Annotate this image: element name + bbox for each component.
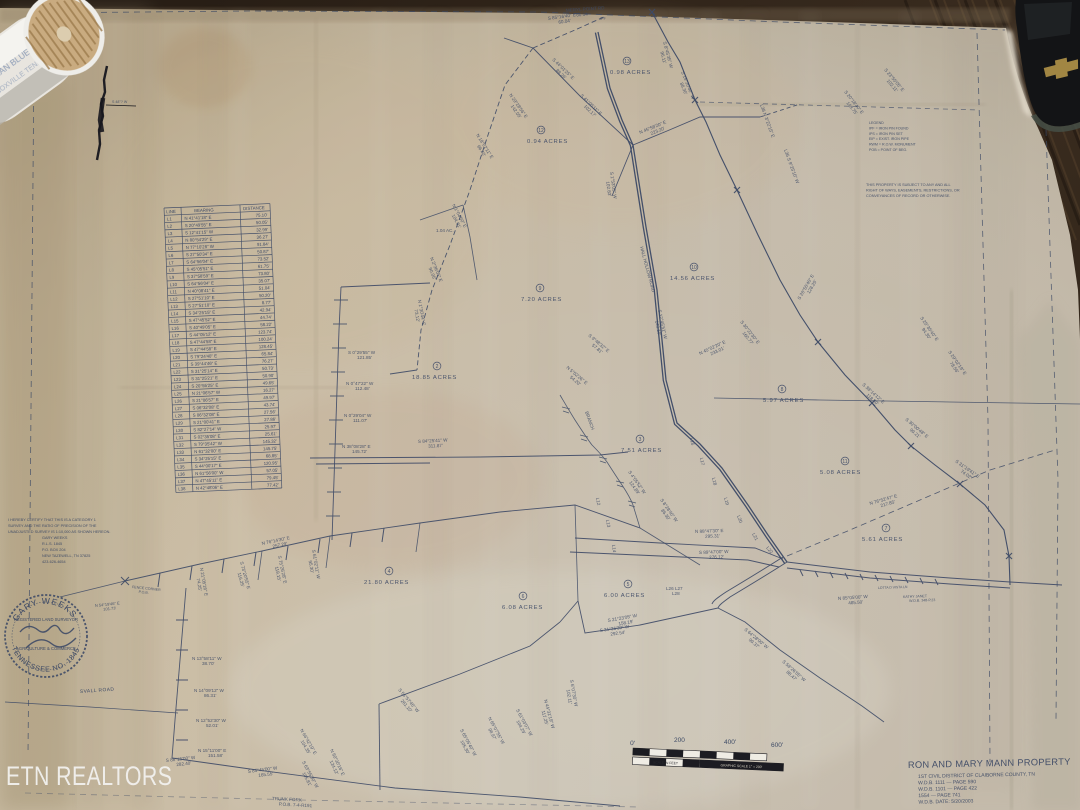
svg-text:LEGEND: LEGEND: [869, 121, 884, 125]
svg-text:L34: L34: [177, 457, 185, 462]
svg-text:16.27': 16.27': [263, 387, 275, 392]
svg-text:L16: L16: [171, 326, 179, 331]
svg-text:49.97': 49.97': [263, 395, 275, 400]
svg-text:123.74': 123.74': [258, 329, 272, 335]
svg-text:L13: L13: [171, 304, 179, 309]
svg-text:60.04~: 60.04~: [576, 11, 591, 17]
svg-text:311.87': 311.87': [428, 443, 443, 449]
svg-text:L15: L15: [171, 318, 179, 323]
svg-text:128.45': 128.45': [259, 344, 273, 350]
svg-text:L24: L24: [174, 384, 182, 389]
svg-text:43.74': 43.74': [264, 402, 276, 407]
svg-text:38.70': 38.70': [202, 661, 214, 666]
svg-text:49.65': 49.65': [263, 380, 275, 385]
svg-text:UNADJUSTED SURVEY IS 1:10,000: UNADJUSTED SURVEY IS 1:10,000 AS SHOWN H…: [8, 530, 110, 534]
svg-text:21.80 ACRES: 21.80 ACRES: [364, 580, 409, 586]
svg-text:52.01': 52.01': [206, 723, 218, 728]
svg-text:L22: L22: [173, 369, 181, 374]
svg-text:NEW TAZEWELL, TN 37825: NEW TAZEWELL, TN 37825: [42, 554, 90, 558]
svg-text:400': 400': [724, 739, 736, 746]
svg-text:L6: L6: [168, 253, 174, 258]
svg-text:IPS = IRON PIN SET: IPS = IRON PIN SET: [869, 132, 904, 136]
svg-text:L10: L10: [170, 282, 178, 287]
svg-text:120.95': 120.95': [264, 460, 278, 466]
svg-text:75.10': 75.10': [256, 212, 268, 217]
svg-text:ETN REALTORS: ETN REALTORS: [6, 762, 172, 792]
svg-text:L28: L28: [175, 413, 183, 418]
svg-text:R.L.S. 1845: R.L.S. 1845: [42, 542, 62, 546]
svg-text:276.12': 276.12': [709, 554, 724, 560]
svg-text:L27: L27: [175, 406, 183, 411]
svg-text:58.22': 58.22': [260, 322, 272, 327]
svg-text:57.05': 57.05': [266, 468, 278, 473]
svg-text:27.86': 27.86': [264, 417, 276, 422]
svg-text:50.87': 50.87': [257, 249, 269, 254]
svg-text:73.52': 73.52': [257, 256, 269, 261]
svg-text:10: 10: [691, 265, 697, 271]
svg-text:L38: L38: [178, 486, 186, 491]
svg-text:145.75': 145.75': [263, 446, 277, 452]
svg-text:L28: L28: [672, 591, 680, 596]
svg-text:AGRICULTURE & COMMERCE: AGRICULTURE & COMMERCE: [16, 646, 76, 651]
svg-text:W.D.B. DATE: 5/20/2003: W.D.B. DATE: 5/20/2003: [918, 798, 973, 805]
svg-text:9: 9: [539, 286, 542, 292]
svg-text:7: 7: [885, 526, 888, 532]
svg-text:76.27': 76.27': [262, 358, 274, 363]
svg-text:L23: L23: [174, 377, 182, 382]
svg-text:EIP = EXIST. IRON PIPE: EIP = EXIST. IRON PIPE: [869, 137, 910, 141]
svg-text:111.07': 111.07': [353, 418, 367, 423]
svg-text:I HEREBY CERTIFY THAT THIS IS: I HEREBY CERTIFY THAT THIS IS A CATEGORY…: [8, 518, 96, 522]
svg-text:L36: L36: [178, 472, 186, 477]
svg-text:5.61 ACRES: 5.61 ACRES: [862, 537, 903, 543]
svg-text:L12: L12: [170, 296, 178, 301]
svg-text:485.50': 485.50': [848, 599, 863, 605]
svg-text:POB = POINT OF BEG.: POB = POINT OF BEG.: [869, 148, 907, 152]
svg-text:50.73': 50.73': [262, 366, 274, 371]
svg-text:L7: L7: [169, 260, 175, 265]
svg-text:LINE: LINE: [166, 209, 176, 214]
svg-text:1.04 AC.: 1.04 AC.: [436, 228, 454, 233]
svg-text:0.98 ACRES: 0.98 ACRES: [610, 70, 651, 76]
svg-text:145.32': 145.32': [263, 438, 277, 444]
svg-text:L2: L2: [167, 224, 173, 229]
svg-text:SURVEY AND THE RATIO OF PRECIS: SURVEY AND THE RATIO OF PRECISION OF THE: [8, 524, 97, 528]
svg-text:L8: L8: [169, 267, 175, 272]
svg-text:GARY WEEKS: GARY WEEKS: [42, 536, 68, 540]
svg-text:S 48°? W: S 48°? W: [112, 100, 128, 104]
svg-text:32.99': 32.99': [256, 227, 268, 232]
svg-text:5.97 ACRES: 5.97 ACRES: [763, 398, 804, 404]
svg-text:L25: L25: [174, 391, 182, 396]
svg-text:RWM = R.O.W. MONUMENT: RWM = R.O.W. MONUMENT: [869, 143, 917, 147]
svg-text:0': 0': [630, 740, 635, 747]
svg-text:5: 5: [627, 582, 630, 588]
svg-text:8.77': 8.77': [262, 300, 272, 305]
svg-text:L4: L4: [168, 238, 174, 243]
svg-text:79.45': 79.45': [267, 475, 279, 480]
svg-text:L11: L11: [170, 289, 178, 294]
svg-text:50.90': 50.90': [262, 373, 274, 378]
svg-text:REGISTERED LAND SURVEYOR: REGISTERED LAND SURVEYOR: [14, 617, 78, 622]
svg-text:L33: L33: [177, 450, 185, 455]
svg-text:BEARING: BEARING: [194, 207, 214, 213]
svg-text:14.56 ACRES: 14.56 ACRES: [670, 276, 715, 282]
svg-text:44.74': 44.74': [260, 314, 272, 319]
svg-text:600': 600': [771, 742, 783, 749]
svg-text:50.05': 50.05': [256, 220, 268, 225]
svg-text:25.97': 25.97': [264, 424, 276, 429]
svg-text:P.O. BOX 204: P.O. BOX 204: [42, 548, 66, 552]
svg-text:L30: L30: [176, 428, 184, 433]
svg-text:7.51 ACRES: 7.51 ACRES: [621, 448, 662, 454]
svg-text:145.72': 145.72': [352, 449, 367, 454]
svg-text:112.48': 112.48': [355, 386, 370, 391]
svg-text:L5: L5: [168, 246, 174, 251]
svg-text:L14: L14: [171, 311, 179, 316]
svg-text:73.80': 73.80': [258, 271, 270, 276]
svg-text:IPF: IPF: [600, 17, 607, 21]
svg-text:36.27': 36.27': [256, 234, 268, 239]
svg-text:L21: L21: [173, 362, 181, 367]
svg-text:6: 6: [522, 594, 525, 600]
svg-text:L1: L1: [167, 216, 173, 221]
svg-text:L9: L9: [169, 275, 175, 280]
svg-text:L3: L3: [167, 231, 173, 236]
svg-text:100.24': 100.24': [258, 336, 272, 342]
svg-text:7.20 ACRES: 7.20 ACRES: [521, 297, 562, 303]
svg-text:77.42': 77.42': [267, 482, 279, 487]
svg-text:35.07': 35.07': [258, 278, 270, 283]
svg-text:51.04': 51.04': [259, 285, 271, 290]
svg-text:L18: L18: [172, 340, 180, 345]
svg-text:6.00 ACRES: 6.00 ACRES: [604, 593, 645, 599]
svg-text:L29: L29: [175, 420, 183, 425]
svg-text:200: 200: [674, 737, 685, 744]
svg-text:121.85': 121.85': [357, 355, 372, 360]
svg-text:86.31': 86.31': [204, 693, 216, 698]
svg-text:L17: L17: [172, 333, 180, 338]
svg-text:8: 8: [781, 387, 784, 393]
svg-text:L31: L31: [176, 435, 184, 440]
svg-text:42.94': 42.94': [260, 307, 272, 312]
svg-text:0.94 ACRES: 0.94 ACRES: [527, 139, 568, 145]
svg-text:IPF = IRON PIN FOUND: IPF = IRON PIN FOUND: [869, 126, 909, 130]
svg-text:6.08 ACRES: 6.08 ACRES: [502, 605, 543, 611]
svg-text:L35: L35: [177, 464, 185, 469]
svg-text:50.20': 50.20': [259, 293, 271, 298]
svg-text:65.84': 65.84': [261, 351, 273, 356]
svg-text:295.31': 295.31': [705, 533, 720, 539]
svg-text:151.58': 151.58': [208, 753, 223, 758]
svg-text:L37: L37: [178, 479, 186, 484]
svg-text:L20: L20: [173, 355, 181, 360]
svg-text:61.75': 61.75': [258, 263, 270, 268]
svg-text:2: 2: [436, 364, 439, 370]
svg-text:RIGHT OF WAYS, EASEMENTS, REST: RIGHT OF WAYS, EASEMENTS, RESTRICTIONS, …: [866, 189, 960, 193]
svg-text:5.08 ACRES: 5.08 ACRES: [820, 470, 861, 476]
svg-text:L26: L26: [175, 399, 183, 404]
svg-text:11: 11: [842, 459, 847, 465]
svg-text:L19: L19: [172, 348, 180, 353]
svg-text:13: 13: [624, 59, 630, 65]
svg-text:68.85': 68.85': [266, 453, 278, 458]
svg-text:THIS PROPERTY IS SUBJECT TO AN: THIS PROPERTY IS SUBJECT TO ANY AND ALL: [866, 183, 951, 187]
svg-text:423-626-4654: 423-626-4654: [42, 560, 66, 564]
svg-text:12: 12: [538, 128, 544, 134]
svg-text:DISTANCE: DISTANCE: [243, 205, 265, 211]
svg-text:CONVEYANCES OF RECORD OR OTHER: CONVEYANCES OF RECORD OR OTHERWISE.: [866, 194, 950, 198]
svg-text:27.56': 27.56': [264, 409, 276, 414]
svg-text:18.85 ACRES: 18.85 ACRES: [412, 375, 457, 381]
svg-text:4: 4: [388, 569, 391, 575]
svg-text:91.84': 91.84': [257, 242, 269, 247]
svg-text:25.61': 25.61': [265, 431, 277, 436]
svg-text:L32: L32: [176, 442, 184, 447]
svg-text:3: 3: [639, 437, 642, 443]
